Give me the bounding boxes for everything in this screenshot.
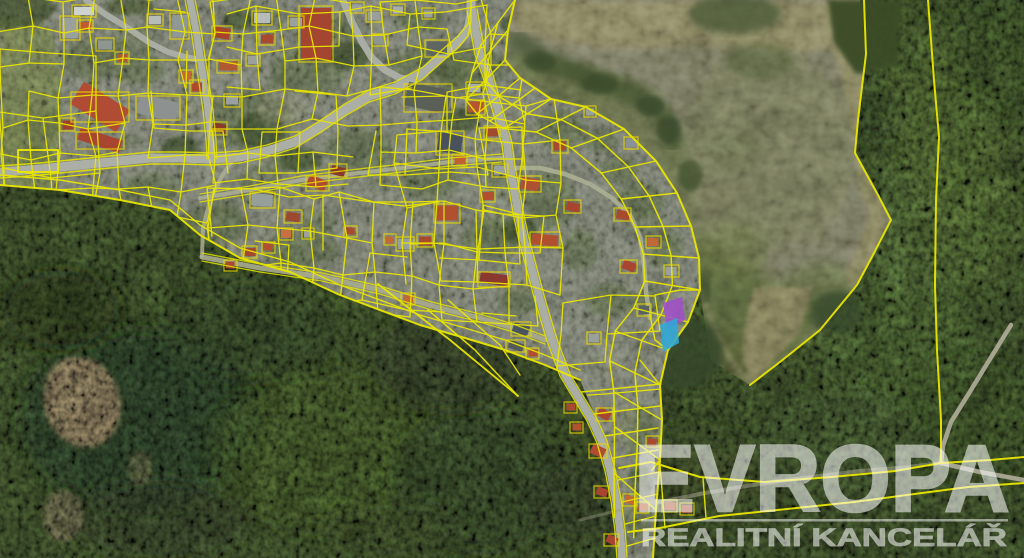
svg-text:EVROPA: EVROPA xyxy=(635,426,1010,532)
svg-text:REALITNÍ KANCELÁŘ: REALITNÍ KANCELÁŘ xyxy=(641,522,1007,552)
